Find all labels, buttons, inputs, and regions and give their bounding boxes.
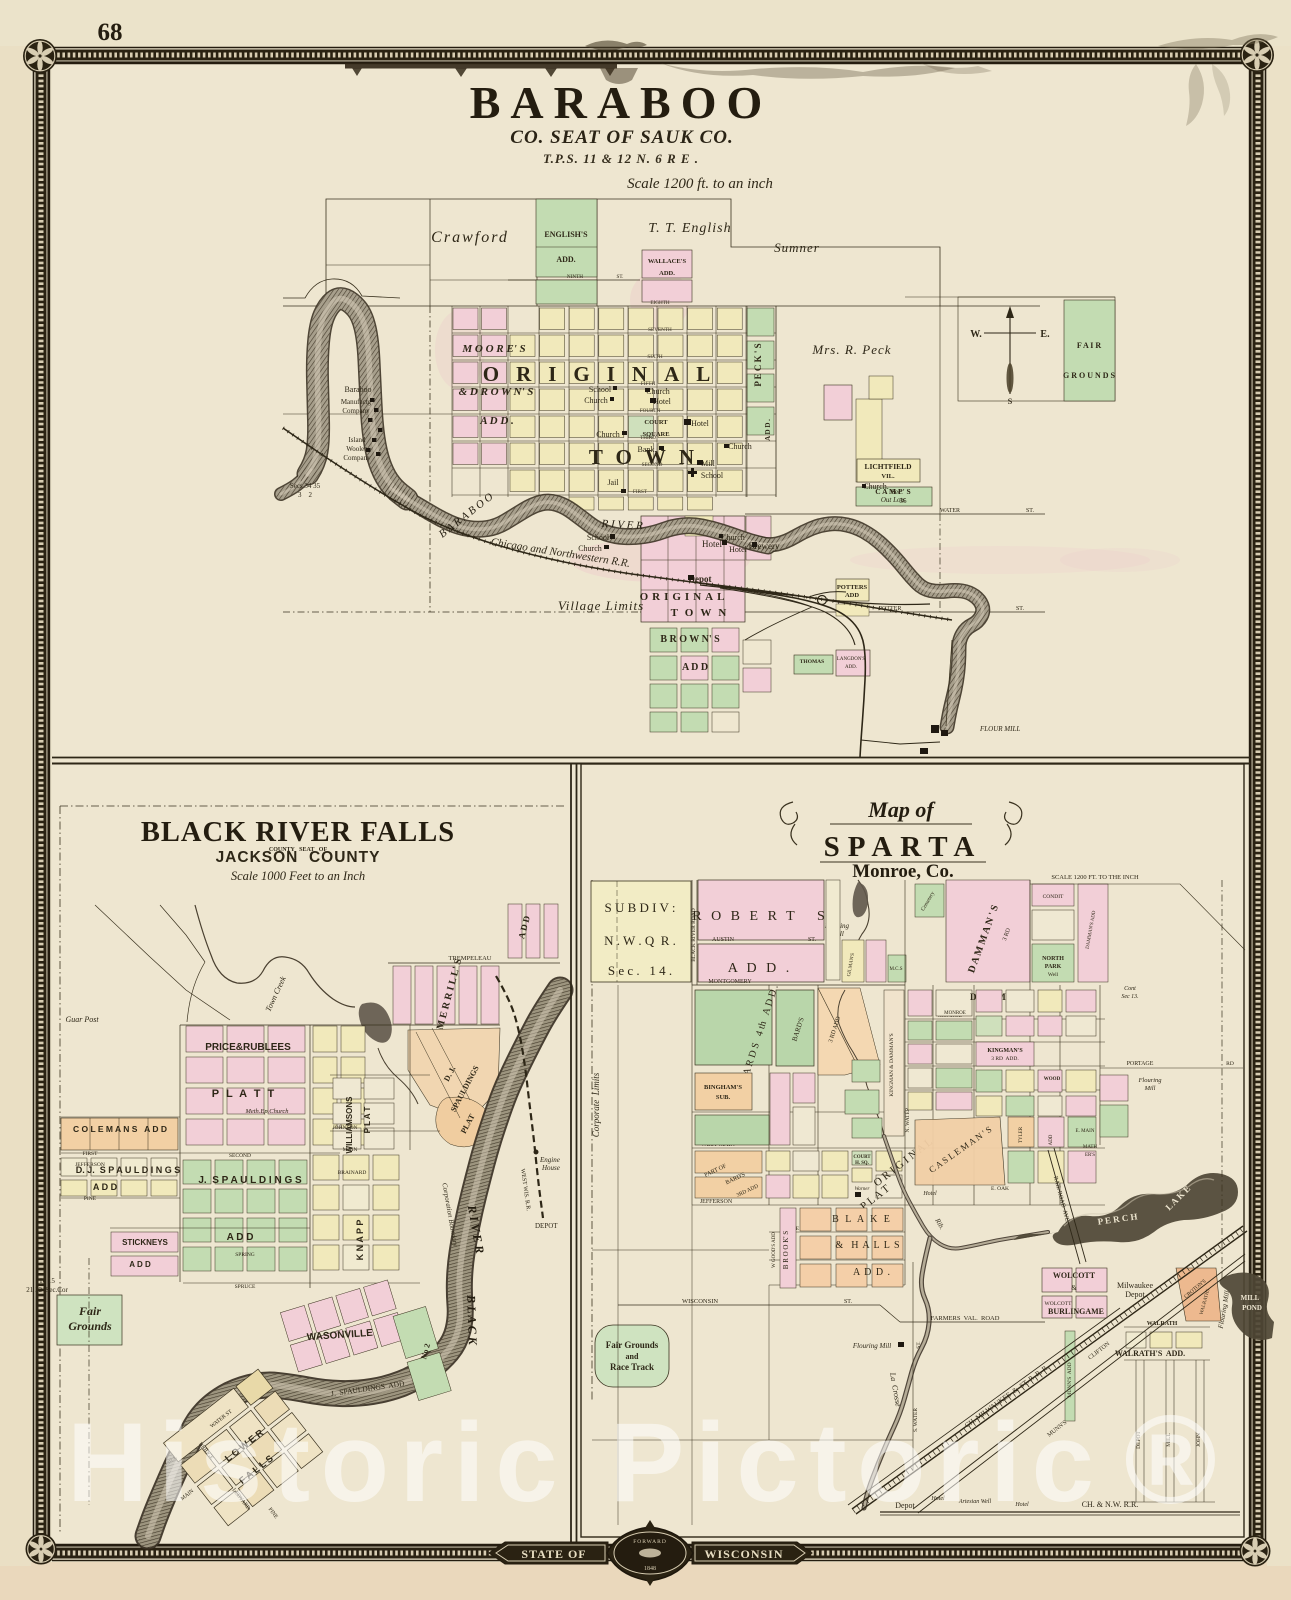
svg-text:A D D .: A D D . <box>728 961 793 976</box>
svg-text:RD: RD <box>1226 1061 1234 1067</box>
svg-text:Mrs. R. Peck: Mrs. R. Peck <box>811 342 891 357</box>
svg-text:Race Track: Race Track <box>610 1362 654 1372</box>
svg-text:SPRING: SPRING <box>235 1252 255 1258</box>
svg-text:Village Limits: Village Limits <box>558 598 644 613</box>
svg-text:PINE: PINE <box>84 1196 97 1202</box>
svg-text:21 22 Sec.Cor: 21 22 Sec.Cor <box>26 1286 68 1294</box>
svg-text:Monroe, Co.: Monroe, Co. <box>852 861 954 882</box>
svg-text:C O L E M A N S A D D: C O L E M A N S A D D <box>73 1124 167 1134</box>
svg-text:H. SQ.: H. SQ. <box>855 1161 869 1166</box>
svg-text:WOLCOTT: WOLCOTT <box>1053 1271 1096 1280</box>
svg-text:SIXTH: SIXTH <box>647 354 663 360</box>
svg-text:S: S <box>1008 397 1013 406</box>
svg-text:ORIGINAL: ORIGINAL <box>483 362 728 386</box>
svg-text:POTTERS: POTTERS <box>837 584 868 591</box>
svg-text:BINGHAM'S: BINGHAM'S <box>704 1084 742 1091</box>
svg-text:P L A T: P L A T <box>363 1107 372 1134</box>
svg-text:P E C K ' S: P E C K ' S <box>753 343 763 386</box>
svg-text:JEFFERSON: JEFFERSON <box>700 1199 733 1205</box>
svg-text:BURLINGAME: BURLINGAME <box>1048 1307 1104 1316</box>
svg-text:& H A L L S: & H A L L S <box>835 1240 900 1251</box>
svg-text:Church: Church <box>596 430 620 439</box>
svg-text:B L A C K: B L A C K <box>464 1294 480 1346</box>
svg-text:Fair Grounds: Fair Grounds <box>606 1340 659 1350</box>
svg-text:T.P.S. 11 & 12 N. 6 R E .: T.P.S. 11 & 12 N. 6 R E . <box>543 151 699 166</box>
svg-text:House: House <box>541 1164 560 1172</box>
svg-text:TREMPELEAU: TREMPELEAU <box>449 955 492 962</box>
svg-text:BLACK RIVER FALLS: BLACK RIVER FALLS <box>141 817 455 848</box>
svg-text:BRAINARD: BRAINARD <box>338 1170 367 1176</box>
svg-text:School: School <box>589 385 612 394</box>
svg-text:COURT: COURT <box>644 419 668 426</box>
svg-text:POTTER: POTTER <box>879 606 902 612</box>
svg-text:FARMERS VAL. ROAD: FARMERS VAL. ROAD <box>931 1315 1000 1322</box>
svg-text:COURT: COURT <box>853 1155 871 1160</box>
svg-text:LANGDON'S: LANGDON'S <box>837 657 866 662</box>
svg-text:Grounds: Grounds <box>68 1319 112 1333</box>
svg-text:B R O O K' S: B R O O K' S <box>782 1231 790 1270</box>
svg-text:Engine: Engine <box>539 1156 560 1164</box>
svg-text:A D D .: A D D . <box>479 415 514 427</box>
svg-text:WALLACE'S: WALLACE'S <box>648 258 687 265</box>
svg-text:WATER: WATER <box>940 508 960 514</box>
svg-text:Church: Church <box>584 396 608 405</box>
svg-text:1848: 1848 <box>644 1566 656 1572</box>
svg-text:Flouring: Flouring <box>1137 1077 1162 1084</box>
svg-text:ADD: ADD <box>1049 1134 1054 1145</box>
svg-text:Cont: Cont <box>1124 986 1136 992</box>
svg-text:DEPOT: DEPOT <box>535 1222 558 1230</box>
svg-text:CO. SEAT OF SAUK CO.: CO. SEAT OF SAUK CO. <box>510 127 733 148</box>
svg-text:ST.: ST. <box>916 1341 922 1349</box>
svg-text:W.: W. <box>970 329 982 340</box>
svg-text:F A I R: F A I R <box>1077 341 1102 350</box>
svg-text:A D D .: A D D . <box>853 1267 891 1278</box>
svg-text:Baraboo: Baraboo <box>344 385 371 394</box>
svg-text:A D D .: A D D . <box>764 419 772 441</box>
svg-text:Company: Company <box>343 454 371 462</box>
svg-text:THOMAS: THOMAS <box>800 659 824 665</box>
svg-text:TYLER: TYLER <box>1019 1126 1024 1143</box>
svg-text:Manufactg: Manufactg <box>341 398 372 406</box>
svg-text:PRICE&RUBLEES: PRICE&RUBLEES <box>205 1042 291 1053</box>
svg-text:Corporate Limits: Corporate Limits <box>591 1072 601 1137</box>
svg-text:NINTH: NINTH <box>567 274 583 280</box>
svg-text:BARABOO: BARABOO <box>470 77 773 128</box>
svg-text:ADD.: ADD. <box>556 255 575 264</box>
svg-text:S e c . 1 4 .: S e c . 1 4 . <box>608 963 672 978</box>
svg-text:AUSTIN: AUSTIN <box>712 937 735 943</box>
svg-text:MONTGOMERY: MONTGOMERY <box>708 979 752 985</box>
svg-text:N . W . Q R .: N . W . Q R . <box>604 933 676 948</box>
svg-text:Warner: Warner <box>855 1187 870 1192</box>
svg-text:ST.: ST. <box>1026 508 1035 514</box>
svg-text:Secs 34 35: Secs 34 35 <box>290 482 321 490</box>
svg-text:SCALE 1200 FT. TO THE INCH: SCALE 1200 FT. TO THE INCH <box>1051 874 1139 881</box>
svg-text:THIRD: THIRD <box>640 435 656 441</box>
svg-text:T. T. English: T. T. English <box>648 221 731 236</box>
svg-text:NORTH: NORTH <box>1042 956 1064 962</box>
svg-text:ADD: ADD <box>845 592 859 599</box>
svg-text:E. OAK: E. OAK <box>991 1186 1009 1192</box>
svg-text:Fair: Fair <box>78 1304 101 1318</box>
svg-text:68: 68 <box>98 19 123 46</box>
svg-text:W GOOD'S ADD: W GOOD'S ADD <box>772 1232 777 1268</box>
svg-text:LICHTFIELD: LICHTFIELD <box>864 462 912 471</box>
svg-text:SPRUCE: SPRUCE <box>235 1284 256 1290</box>
svg-text:FLOUR MILL: FLOUR MILL <box>979 725 1020 733</box>
svg-text:PARK: PARK <box>1045 964 1062 970</box>
svg-text:SECOND: SECOND <box>642 462 663 468</box>
svg-text:KINGMAN'S: KINGMAN'S <box>987 1048 1023 1054</box>
svg-text:K N A P P: K N A P P <box>355 1220 365 1261</box>
svg-text:Depot: Depot <box>1125 1290 1145 1299</box>
svg-text:3 RD ADD.: 3 RD ADD. <box>991 1056 1019 1062</box>
svg-text:A D D: A D D <box>129 1260 151 1269</box>
svg-text:KINGMAN & DAMMAN'S: KINGMAN & DAMMAN'S <box>889 1033 895 1096</box>
svg-text:ENGLISH'S: ENGLISH'S <box>544 230 588 239</box>
svg-text:MILL: MILL <box>1241 1294 1260 1302</box>
svg-text:M O O R E' S: M O O R E' S <box>461 343 525 355</box>
svg-text:E.: E. <box>1040 329 1050 340</box>
svg-text:B R O W N' S: B R O W N' S <box>660 634 720 645</box>
svg-text:JEFFERSON: JEFFERSON <box>75 1162 105 1168</box>
svg-text:WISCONSIN: WISCONSIN <box>682 1298 718 1305</box>
svg-text:S U B D I V :: S U B D I V : <box>604 900 675 915</box>
svg-text:36: 36 <box>900 497 908 505</box>
svg-text:M.C.S: M.C.S <box>889 967 902 972</box>
svg-text:VIL.: VIL. <box>881 473 895 480</box>
svg-text:Hotel: Hotel <box>922 1191 937 1197</box>
svg-text:B L A K E: B L A K E <box>832 1214 892 1225</box>
svg-text:Flouring Mill: Flouring Mill <box>852 1342 891 1350</box>
svg-text:16 15: 16 15 <box>39 1277 55 1285</box>
svg-text:Island: Island <box>348 436 366 444</box>
svg-text:& D R O W N' S: & D R O W N' S <box>459 386 534 398</box>
svg-text:SEVENTH: SEVENTH <box>648 327 672 333</box>
svg-text:Hotel: Hotel <box>691 419 710 428</box>
svg-text:FORWARD: FORWARD <box>633 1539 667 1545</box>
svg-text:Crawford: Crawford <box>431 229 509 246</box>
svg-text:G R O U N D S: G R O U N D S <box>1063 371 1116 380</box>
svg-text:FIFTH: FIFTH <box>641 381 656 387</box>
svg-text:MAIN: MAIN <box>343 1147 358 1153</box>
svg-text:R I V E R: R I V E R <box>600 518 643 532</box>
svg-text:SUB.: SUB. <box>716 1094 731 1101</box>
svg-text:A D D: A D D <box>227 1232 254 1243</box>
svg-text:E. MAIN: E. MAIN <box>1076 1129 1095 1134</box>
svg-text:STATE OF: STATE OF <box>521 1547 586 1561</box>
svg-text:Scale 1200 ft. to an inch: Scale 1200 ft. to an inch <box>627 176 773 192</box>
svg-text:Sec 13.: Sec 13. <box>1121 994 1138 1000</box>
svg-text:Church.: Church. <box>863 482 889 491</box>
svg-text:and: and <box>626 1352 639 1361</box>
svg-text:STICKNEYS: STICKNEYS <box>122 1238 168 1247</box>
svg-text:POND: POND <box>1242 1304 1262 1312</box>
svg-text:P L A T T: P L A T T <box>212 1088 276 1100</box>
svg-text:Meth.Ep.Church: Meth.Ep.Church <box>244 1108 288 1115</box>
svg-text:Guar Post: Guar Post <box>65 1015 99 1024</box>
svg-text:A D D: A D D <box>93 1182 118 1192</box>
svg-text:Mill: Mill <box>1144 1085 1156 1092</box>
svg-text:ORIGINAL: ORIGINAL <box>640 591 729 603</box>
svg-text:ER'S: ER'S <box>1085 1153 1095 1158</box>
svg-text:Milwaukee: Milwaukee <box>1117 1281 1153 1290</box>
svg-text:Church: Church <box>728 442 752 451</box>
svg-text:N. WATER: N. WATER <box>905 1107 911 1132</box>
svg-text:MONROE: MONROE <box>944 1011 966 1016</box>
svg-text:School: School <box>701 471 724 480</box>
svg-text:Sec.: Sec. <box>891 488 903 496</box>
svg-text:WISCONSIN: WISCONSIN <box>704 1547 783 1561</box>
svg-text:Hotel: Hotel <box>729 545 748 554</box>
svg-text:Hotel: Hotel <box>702 539 722 549</box>
svg-text:R O B E R T S: R O B E R T S <box>692 909 828 924</box>
svg-text:ST.: ST. <box>617 274 624 280</box>
svg-text:JACKSON COUNTY: JACKSON COUNTY <box>216 849 381 866</box>
svg-text:3 2: 3 2 <box>298 491 313 499</box>
svg-text:Sumner: Sumner <box>774 240 820 255</box>
svg-text:FIRST: FIRST <box>83 1151 99 1157</box>
svg-text:WOOD: WOOD <box>1044 1077 1061 1082</box>
svg-text:J. S P A U L D I N G S: J. S P A U L D I N G S <box>198 1175 302 1186</box>
svg-text:&: & <box>1071 1284 1077 1292</box>
svg-text:SECOND: SECOND <box>229 1153 251 1159</box>
svg-text:Jail: Jail <box>607 478 619 487</box>
svg-text:School: School <box>587 533 610 542</box>
svg-text:SPARTA: SPARTA <box>824 831 983 863</box>
svg-text:Company: Company <box>342 407 370 415</box>
svg-text:Mill: Mill <box>701 459 716 468</box>
svg-text:CONDIT: CONDIT <box>1043 894 1064 900</box>
svg-text:Church: Church <box>578 544 602 553</box>
svg-text:PORTAGE: PORTAGE <box>1127 1061 1154 1067</box>
svg-text:Church: Church <box>721 533 745 542</box>
svg-text:MATH: MATH <box>1083 1145 1098 1150</box>
svg-text:FOURTH: FOURTH <box>640 408 661 414</box>
svg-text:A D D: A D D <box>682 662 708 673</box>
svg-text:TOWN: TOWN <box>671 607 734 619</box>
svg-text:Well: Well <box>1048 972 1059 978</box>
svg-text:MUNN'S ADD: MUNN'S ADD <box>1067 1362 1073 1397</box>
svg-text:Historic Pictoric: Historic Pictoric <box>67 1400 1104 1525</box>
svg-text:EIGHTH: EIGHTH <box>650 300 670 306</box>
svg-text:ST.: ST. <box>844 1299 853 1305</box>
svg-text:Bank.: Bank. <box>638 445 657 454</box>
svg-text:®: ® <box>1124 1389 1217 1530</box>
svg-text:Scale 1000 Feet to an Inch: Scale 1000 Feet to an Inch <box>231 869 365 883</box>
svg-text:ST.: ST. <box>1016 606 1025 612</box>
svg-text:FIRST: FIRST <box>633 489 648 495</box>
svg-text:ADD.: ADD. <box>845 665 857 670</box>
svg-text:Map of: Map of <box>867 797 936 822</box>
svg-text:ST.: ST. <box>808 937 817 943</box>
svg-text:Woolen: Woolen <box>346 445 368 453</box>
svg-text:ADD.: ADD. <box>659 270 675 277</box>
svg-text:JOHNSON: JOHNSON <box>332 1125 357 1131</box>
